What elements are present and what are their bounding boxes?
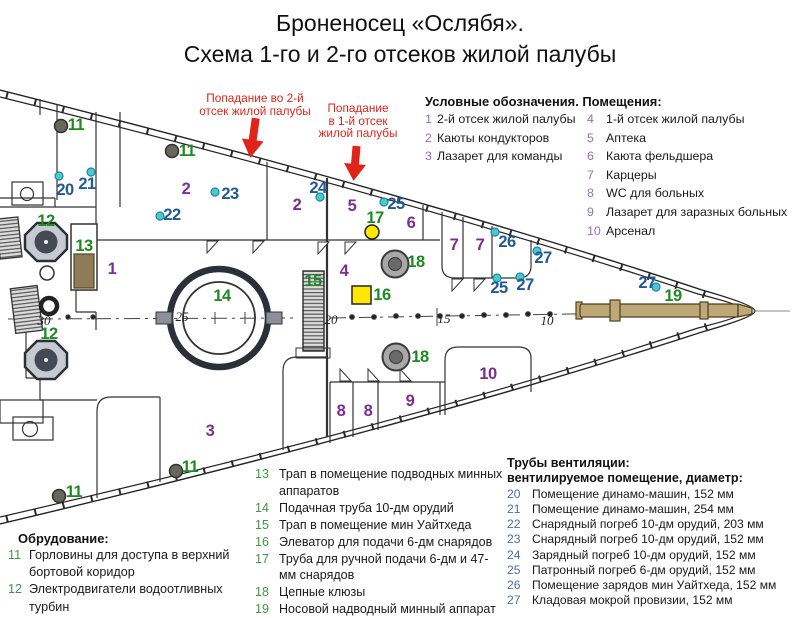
frame-number-25: 25 <box>176 309 189 325</box>
item-number: 20 <box>507 487 528 502</box>
diagram-number-11: 11 <box>68 117 84 133</box>
item-text: Патронный погреб 6-дм орудий, 152 мм <box>532 563 799 578</box>
legend-ventilation: Трубы вентиляции: вентилируемое помещени… <box>507 456 799 608</box>
diagram-number-6: 6 <box>407 215 416 231</box>
item-number: 8 <box>587 184 602 203</box>
item-number: 11 <box>8 547 25 564</box>
diagram-number-2: 2 <box>182 181 191 197</box>
legend-room-item: 5Аптека <box>587 129 787 148</box>
item-number: 17 <box>255 551 275 568</box>
diagram-number-22: 22 <box>163 207 180 223</box>
legend-room-item: 10Арсенал <box>587 222 787 241</box>
annotation-line: Попадание во 2-й <box>194 92 316 105</box>
diagram-number-18: 18 <box>407 254 424 270</box>
annotation-hit-1st-compartment: Попадание в 1-й отсек жилой палубы <box>311 102 405 140</box>
item-text: 2-й отсек жилой палубы <box>437 110 587 129</box>
legend-rooms: Условные обозначения. Помещения: 12-й от… <box>425 93 797 240</box>
item-number: 16 <box>255 534 275 551</box>
item-number: 9 <box>587 203 602 222</box>
item-number: 6 <box>587 147 602 166</box>
diagram-number-19: 19 <box>664 288 681 304</box>
legend-equipment: Обрудование: 11Горловины для доступа в в… <box>8 530 246 616</box>
fitting-item: 16Элеватор для подачи 6-дм снарядов <box>255 534 503 551</box>
title-line-1: Броненосец «Ослябя». <box>0 8 800 39</box>
diagram-number-23: 23 <box>221 186 238 202</box>
diagram-number-11: 11 <box>179 143 195 159</box>
diagram-number-10: 10 <box>479 366 496 382</box>
diagram-number-27: 27 <box>534 250 551 266</box>
diagram-number-1: 1 <box>108 261 117 277</box>
diagram-number-21: 21 <box>78 176 95 192</box>
diagram-number-20: 20 <box>56 182 73 198</box>
diagram-number-5: 5 <box>348 198 357 214</box>
item-number: 13 <box>255 466 275 483</box>
fitting-item: 18Цепные клюзы <box>255 584 503 601</box>
item-number: 22 <box>507 517 528 532</box>
diagram-number-15: 15 <box>304 273 321 289</box>
item-text: Снарядный погреб 10-дм орудий, 152 мм <box>532 532 799 547</box>
item-text: Горловины для доступа в верхний бортовой… <box>29 547 246 581</box>
item-text: Карцеры <box>606 166 787 185</box>
ventilation-item: 22Снарядный погреб 10-дм орудий, 203 мм <box>507 517 799 532</box>
diagram-number-11: 11 <box>66 484 82 500</box>
legend-room-item: 12-й отсек жилой палубы <box>425 110 587 129</box>
diagram-number-13: 13 <box>75 238 92 254</box>
item-text: Аптека <box>606 129 787 148</box>
item-text: Каюта фельдшера <box>606 147 787 166</box>
item-text: Носовой надводный минный аппарат <box>279 601 503 618</box>
item-text: Электродвигатели водоотливных турбин <box>29 581 246 615</box>
legend-room-item: 8WC для больных <box>587 184 787 203</box>
ventilation-item: 26Помещение зарядов мин Уайтхеда, 152 мм <box>507 578 799 593</box>
annotation-line: жилой палубы <box>311 127 405 140</box>
item-text: Элеватор для подачи 6-дм снарядов <box>279 534 503 551</box>
item-number: 4 <box>587 110 602 129</box>
ventilation-item: 25Патронный погреб 6-дм орудий, 152 мм <box>507 563 799 578</box>
ventilation-item: 20Помещение динамо-машин, 152 мм <box>507 487 799 502</box>
item-text: Трап в помещение подводных минных аппара… <box>279 466 503 500</box>
annotation-line: отсек жилой палубы <box>194 105 316 118</box>
legend-room-item: 9Лазарет для заразных больных <box>587 203 787 222</box>
diagram-number-8: 8 <box>337 403 346 419</box>
legend-room-item: 3Лазарет для команды <box>425 147 587 166</box>
item-text: Цепные клюзы <box>279 584 503 601</box>
item-text: Снарядный погреб 10-дм орудий, 203 мм <box>532 517 799 532</box>
ventilation-header-1: Трубы вентиляции: <box>507 456 799 471</box>
ventilation-item: 21Помещение динамо-машин, 254 мм <box>507 502 799 517</box>
diagram-number-24: 24 <box>309 180 326 196</box>
item-text: Зарядный погреб 10-дм орудий, 152 мм <box>532 548 799 563</box>
item-number: 19 <box>255 601 275 618</box>
page-title: Броненосец «Ослябя». Схема 1-го и 2-го о… <box>0 8 800 70</box>
diagram-number-12: 12 <box>37 213 54 229</box>
diagram-number-25: 25 <box>387 196 404 212</box>
item-text: WC для больных <box>606 184 787 203</box>
diagram-number-9: 9 <box>406 393 415 409</box>
fitting-item: 13Трап в помещение подводных минных аппа… <box>255 466 503 500</box>
item-text: Каюты кондукторов <box>437 129 587 148</box>
fitting-item: 14Подачная труба 10-дм орудий <box>255 500 503 517</box>
diagram-number-14: 14 <box>213 288 230 304</box>
item-number: 21 <box>507 502 528 517</box>
frame-number-15: 15 <box>438 311 451 327</box>
fitting-item: 17Труба для ручной подачи 6-дм и 47-мм с… <box>255 551 503 585</box>
legend-fittings: 13Трап в помещение подводных минных аппа… <box>255 466 503 618</box>
frame-number-30: 30 <box>38 313 51 329</box>
item-number: 1 <box>425 110 433 129</box>
frame-number-20: 20 <box>325 312 338 328</box>
annotation-hit-2nd-compartment: Попадание во 2-й отсек жилой палубы <box>194 92 316 117</box>
item-text: Арсенал <box>606 222 787 241</box>
diagram-number-3: 3 <box>206 423 215 439</box>
diagram-number-25: 25 <box>490 280 507 296</box>
item-text: 1-й отсек жилой палубы <box>606 110 787 129</box>
item-text: Кладовая мокрой провизии, 152 мм <box>532 593 799 608</box>
item-number: 26 <box>507 578 528 593</box>
item-text: Лазарет для заразных больных <box>606 203 787 222</box>
item-number: 3 <box>425 147 433 166</box>
item-number: 15 <box>255 517 275 534</box>
screenshot-root: 1223456778891011111111121213141516171818… <box>0 0 800 618</box>
equipment-header: Обрудование: <box>18 530 246 547</box>
ventilation-header-2: вентилируемое помещение, диаметр: <box>507 471 799 486</box>
diagram-number-17: 17 <box>366 210 383 226</box>
ventilation-item: 27Кладовая мокрой провизии, 152 мм <box>507 593 799 608</box>
diagram-number-18: 18 <box>411 349 428 365</box>
item-text: Помещение динамо-машин, 152 мм <box>532 487 799 502</box>
ventilation-item: 24Зарядный погреб 10-дм орудий, 152 мм <box>507 548 799 563</box>
diagram-number-4: 4 <box>340 263 349 279</box>
legend-rooms-columns: 12-й отсек жилой палубы2Каюты кондукторо… <box>425 110 797 240</box>
diagram-number-27: 27 <box>516 277 533 293</box>
diagram-number-27: 27 <box>638 275 655 291</box>
legend-rooms-header: Условные обозначения. Помещения: <box>425 93 797 110</box>
legend-room-item: 2Каюты кондукторов <box>425 129 587 148</box>
diagram-number-16: 16 <box>373 287 390 303</box>
diagram-number-2: 2 <box>293 197 302 213</box>
item-text: Лазарет для команды <box>437 147 587 166</box>
item-number: 24 <box>507 548 528 563</box>
item-number: 12 <box>8 581 25 598</box>
item-number: 7 <box>587 166 602 185</box>
item-number: 25 <box>507 563 528 578</box>
fitting-item: 19Носовой надводный минный аппарат <box>255 601 503 618</box>
title-line-2: Схема 1-го и 2-го отсеков жилой палубы <box>0 39 800 70</box>
item-number: 2 <box>425 129 433 148</box>
item-number: 18 <box>255 584 275 601</box>
item-number: 5 <box>587 129 602 148</box>
legend-room-item: 41-й отсек жилой палубы <box>587 110 787 129</box>
legend-room-item: 7Карцеры <box>587 166 787 185</box>
equipment-item: 11Горловины для доступа в верхний бортов… <box>8 547 246 581</box>
frame-number-10: 10 <box>541 313 554 329</box>
item-number: 23 <box>507 532 528 547</box>
diagram-number-8: 8 <box>364 403 373 419</box>
ventilation-item: 23Снарядный погреб 10-дм орудий, 152 мм <box>507 532 799 547</box>
item-text: Труба для ручной подачи 6-дм и 47-мм сна… <box>279 551 503 585</box>
item-number: 14 <box>255 500 275 517</box>
equipment-item: 12Электродвигатели водоотливных турбин <box>8 581 246 615</box>
item-text: Трап в помещение мин Уайтхеда <box>279 517 503 534</box>
item-text: Помещение динамо-машин, 254 мм <box>532 502 799 517</box>
item-text: Помещение зарядов мин Уайтхеда, 152 мм <box>532 578 799 593</box>
fitting-item: 15Трап в помещение мин Уайтхеда <box>255 517 503 534</box>
diagram-number-11: 11 <box>182 459 198 475</box>
item-number: 27 <box>507 593 528 608</box>
annotation-line: Попадание <box>311 102 405 115</box>
item-text: Подачная труба 10-дм орудий <box>279 500 503 517</box>
item-number: 10 <box>587 222 602 241</box>
legend-room-item: 6Каюта фельдшера <box>587 147 787 166</box>
